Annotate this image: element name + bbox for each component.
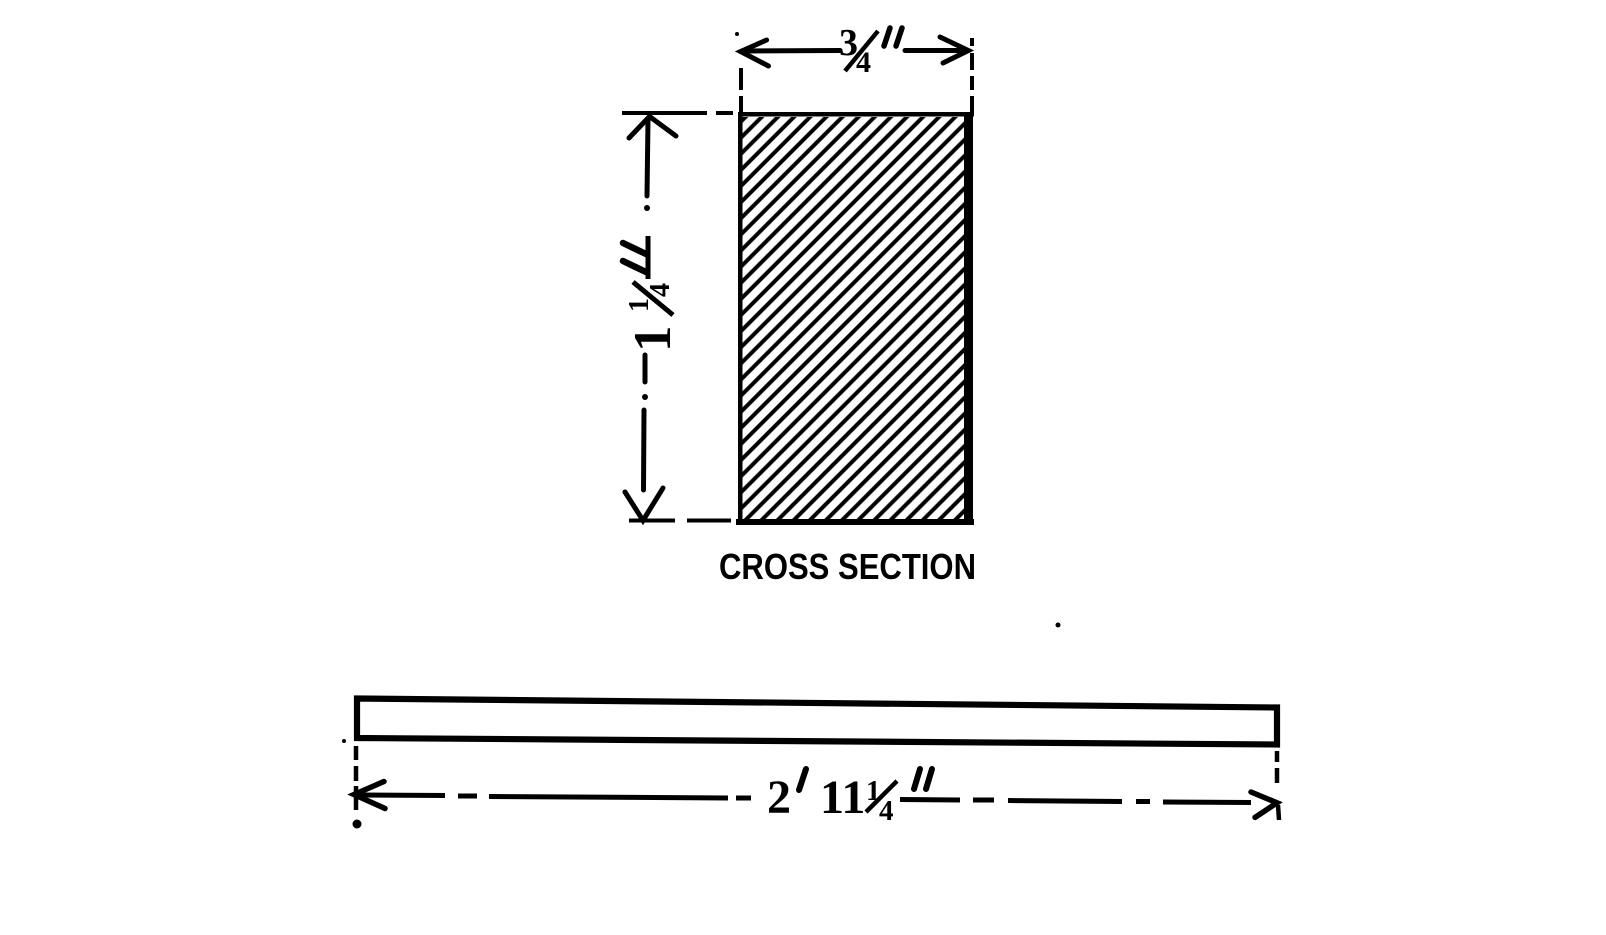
svg-text:4: 4: [645, 283, 676, 297]
svg-text:1: 1: [624, 298, 655, 312]
svg-text:1: 1: [624, 326, 682, 353]
svg-text:11: 11: [820, 771, 865, 824]
svg-text:4: 4: [879, 795, 894, 827]
svg-text:CROSS SECTION: CROSS SECTION: [719, 546, 976, 587]
svg-text:2: 2: [767, 771, 791, 824]
svg-text:4: 4: [856, 46, 871, 79]
